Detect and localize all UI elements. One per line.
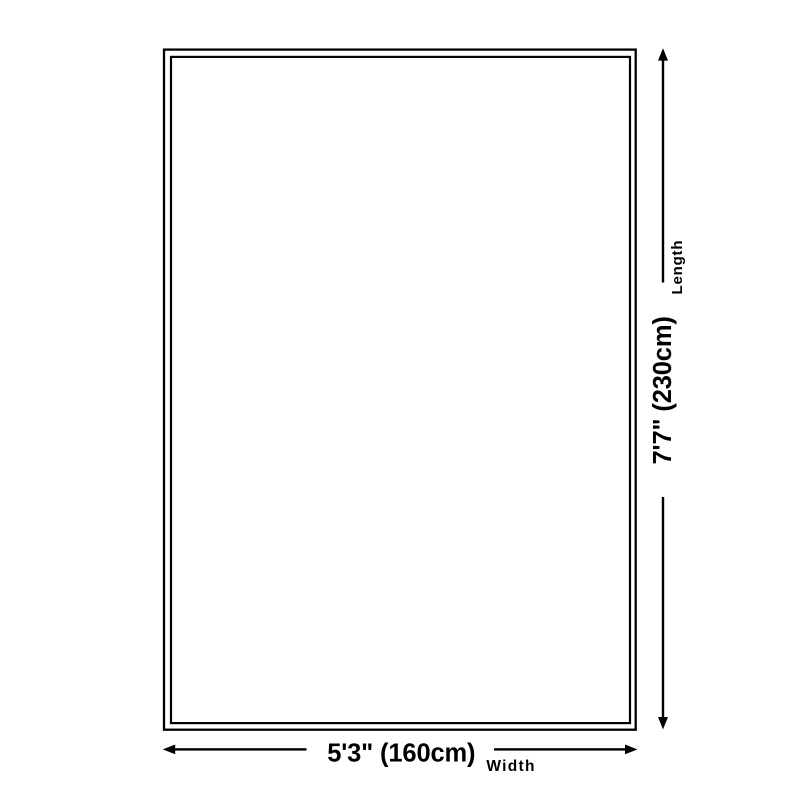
svg-text:7'7" (230cm): 7'7" (230cm) <box>649 316 677 464</box>
svg-text:5'3" (160cm): 5'3" (160cm) <box>327 740 475 768</box>
svg-text:Width: Width <box>486 758 535 775</box>
svg-text:Length: Length <box>669 240 686 295</box>
